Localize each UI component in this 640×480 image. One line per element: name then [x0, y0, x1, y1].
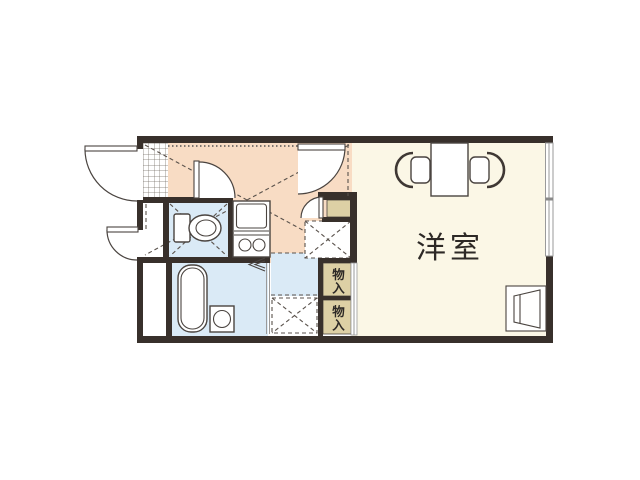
side-strip: [143, 263, 166, 336]
storage-bottom-label: 物入: [323, 302, 351, 334]
side-service-door: [107, 227, 138, 260]
genkan-hatch: [143, 143, 168, 198]
floor-plan-drawing: [0, 0, 640, 480]
sliding-window: [546, 143, 554, 256]
small-storage-box: [327, 200, 351, 217]
table: [431, 143, 468, 196]
toilet: [174, 214, 221, 242]
chair-left: [411, 157, 430, 183]
western-room-label: 洋室: [393, 223, 507, 267]
bathtub: [178, 265, 207, 332]
storage-sliding-doors: [351, 263, 357, 335]
floor-plan: 洋室 物入 物入: [0, 0, 640, 480]
storage-top-label: 物入: [323, 265, 351, 297]
entrance-door: [85, 146, 137, 201]
washing-space-floor: [271, 253, 320, 296]
tv: [506, 286, 546, 331]
washing-machine: [210, 306, 234, 332]
kitchen-counter: [233, 201, 270, 257]
chair-right: [470, 157, 489, 183]
